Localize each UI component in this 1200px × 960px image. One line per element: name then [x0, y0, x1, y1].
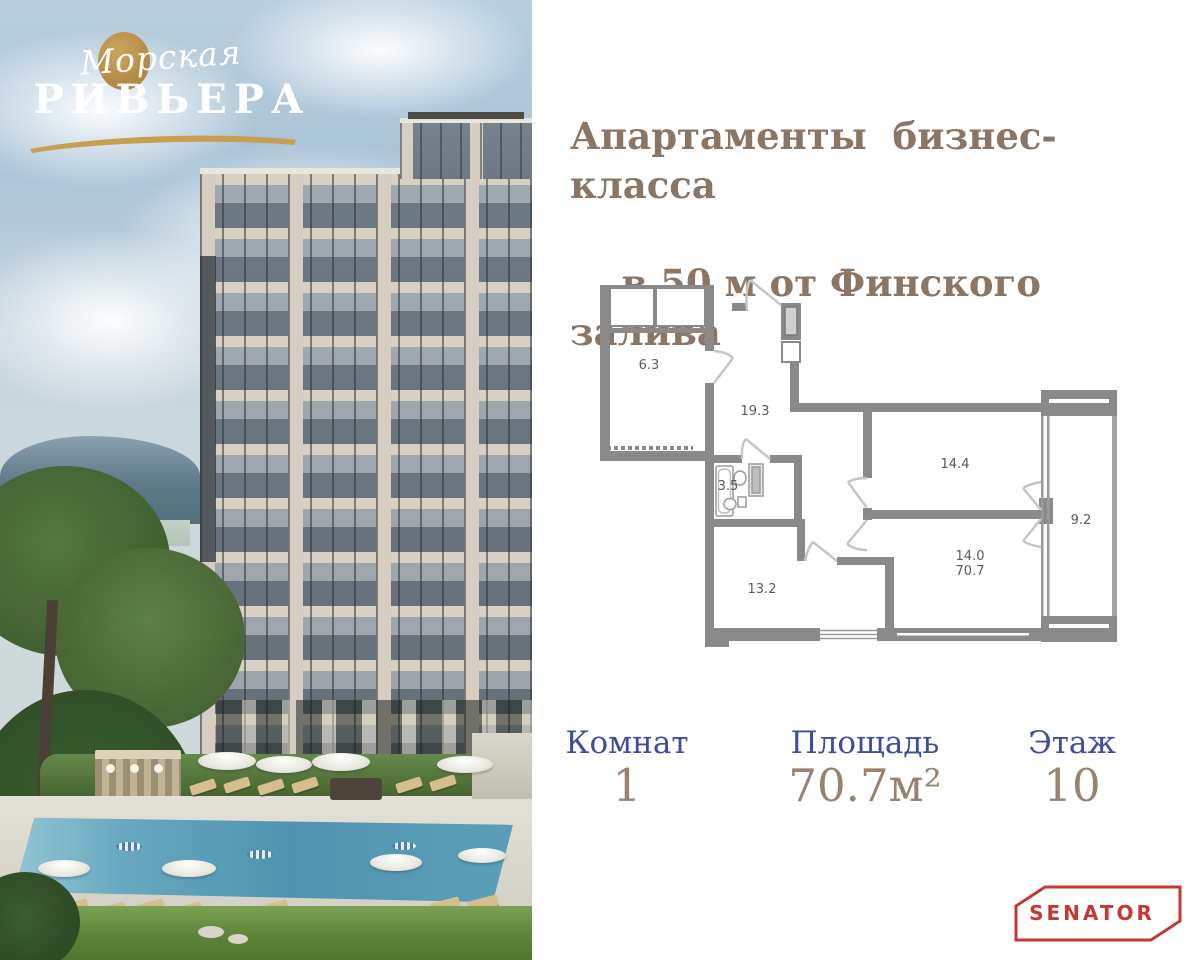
- room-area-label: 3.5: [718, 479, 739, 494]
- room-area-label: 19.3: [741, 404, 770, 419]
- info-label: Этаж: [997, 726, 1147, 760]
- rock: [228, 934, 248, 944]
- info-card-rooms: Комнат 1: [552, 726, 702, 812]
- info-value: 10: [997, 760, 1147, 812]
- logo-name-word: РИВЬЕРА: [26, 76, 318, 123]
- room-area-label: 14.0: [956, 549, 985, 564]
- rock: [198, 926, 224, 938]
- umbrella: [458, 848, 506, 863]
- logo-swoosh-icon: [24, 132, 304, 156]
- info-label: Площадь: [775, 726, 955, 760]
- info-value: 1: [552, 760, 702, 812]
- blue-umbrella: [116, 842, 142, 851]
- foreground-tree: [240, 724, 420, 960]
- roof-pergola: [408, 112, 524, 119]
- room-area-label: 9.2: [1071, 513, 1092, 528]
- building-side-wall: [200, 256, 216, 562]
- developer-logo: SENATOR: [1012, 884, 1184, 944]
- plan-walls: [600, 285, 1117, 647]
- umbrella: [198, 752, 256, 770]
- plan-windows: [607, 288, 1117, 641]
- umbrella: [437, 756, 493, 773]
- senator-logo-text: SENATOR: [1012, 901, 1172, 925]
- umbrella: [38, 860, 90, 877]
- room-area-label: 13.2: [748, 582, 777, 597]
- hero-photo: Морская РИВЬЕРА: [0, 0, 532, 960]
- info-card-floor: Этаж 10: [997, 726, 1147, 812]
- umbrella: [162, 860, 216, 877]
- headline-line1: Апартаменты бизнес-класса: [570, 114, 1057, 207]
- total-area-label: 70.7: [956, 564, 985, 579]
- info-value: 70.7м²: [775, 760, 955, 812]
- info-card-area: Площадь 70.7м²: [775, 726, 955, 812]
- cabana-lamp: [130, 764, 139, 773]
- cabana-lamp: [154, 764, 163, 773]
- cabana-lamp: [106, 764, 115, 773]
- building-facade: [200, 168, 532, 766]
- info-label: Комнат: [552, 726, 702, 760]
- room-area-label: 14.4: [941, 457, 970, 472]
- floor-plan: 6.3 19.3 3.5 14.4 14.0 70.7 9.2 13.2: [597, 272, 1142, 670]
- room-area-label: 6.3: [639, 358, 660, 373]
- building-upper-floor: [400, 118, 532, 179]
- flyer: Морская РИВЬЕРА Апартаменты бизнес-класс…: [0, 0, 1200, 960]
- brand-logo: Морская РИВЬЕРА: [18, 14, 318, 154]
